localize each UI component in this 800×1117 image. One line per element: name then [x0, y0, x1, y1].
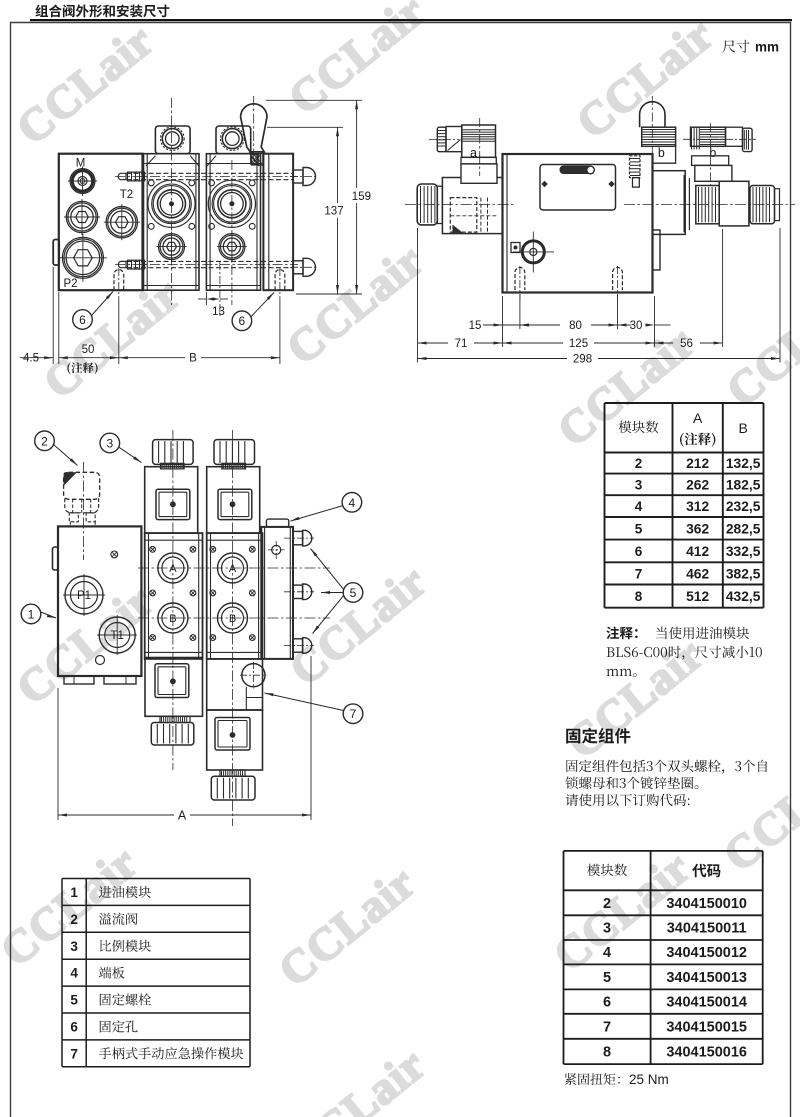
svg-text:4: 4 — [603, 945, 611, 961]
svg-text:7: 7 — [603, 1019, 611, 1035]
svg-text:362: 362 — [686, 521, 709, 536]
svg-text:71: 71 — [455, 338, 468, 350]
svg-text:2: 2 — [635, 456, 643, 471]
svg-text:B: B — [229, 613, 236, 625]
svg-text:b: b — [658, 146, 665, 160]
svg-text:5: 5 — [635, 521, 643, 536]
svg-text:4: 4 — [70, 966, 78, 981]
svg-text:159: 159 — [352, 191, 371, 203]
svg-text:B: B — [169, 613, 176, 625]
svg-text:7: 7 — [350, 707, 357, 721]
svg-text:CCLair: CCLair — [279, 1038, 435, 1117]
svg-text:125: 125 — [569, 338, 588, 350]
svg-text:T1: T1 — [110, 630, 123, 642]
svg-text:B: B — [189, 353, 197, 365]
svg-text:M: M — [76, 158, 86, 170]
svg-text:462: 462 — [686, 566, 709, 581]
svg-text:8: 8 — [603, 1044, 611, 1060]
svg-text:3404150015: 3404150015 — [666, 1019, 747, 1035]
svg-text:CCLair: CCLair — [277, 234, 433, 374]
svg-text:1: 1 — [70, 885, 78, 900]
svg-text:6: 6 — [635, 544, 643, 559]
svg-text:30: 30 — [630, 320, 643, 332]
svg-text:137: 137 — [324, 206, 343, 218]
svg-text:6: 6 — [79, 313, 86, 327]
svg-text:25 Nm: 25 Nm — [629, 1072, 669, 1087]
svg-text:4: 4 — [635, 499, 643, 514]
svg-text:6: 6 — [70, 1019, 78, 1034]
svg-text:382,5: 382,5 — [726, 566, 761, 581]
svg-text:8: 8 — [635, 589, 643, 604]
svg-text:2: 2 — [70, 912, 78, 927]
svg-text:7: 7 — [635, 566, 643, 581]
svg-text:3: 3 — [70, 939, 78, 954]
svg-text:80: 80 — [569, 320, 582, 332]
svg-text:182,5: 182,5 — [726, 477, 761, 492]
svg-text:1: 1 — [28, 608, 35, 622]
svg-text:15: 15 — [469, 320, 482, 332]
svg-text:2: 2 — [603, 896, 611, 912]
svg-text:212: 212 — [686, 456, 709, 471]
svg-text:A: A — [693, 410, 703, 426]
svg-text:56: 56 — [680, 338, 693, 350]
svg-text:332,5: 332,5 — [726, 544, 761, 559]
svg-text:298: 298 — [573, 354, 592, 366]
svg-text:282,5: 282,5 — [726, 521, 761, 536]
svg-text:CCLair: CCLair — [280, 555, 436, 695]
svg-text:2: 2 — [41, 434, 48, 448]
svg-text:7: 7 — [70, 1046, 78, 1061]
svg-text:6: 6 — [239, 314, 246, 328]
svg-text:4: 4 — [349, 496, 356, 510]
svg-text:13: 13 — [212, 306, 225, 318]
svg-text:A: A — [169, 563, 177, 575]
svg-text:3404150016: 3404150016 — [666, 1044, 747, 1060]
svg-text:P2: P2 — [63, 278, 77, 290]
svg-text:5: 5 — [350, 586, 357, 600]
svg-text:512: 512 — [686, 589, 709, 604]
svg-text:262: 262 — [686, 477, 709, 492]
svg-text:50: 50 — [82, 344, 95, 356]
svg-text:A: A — [178, 809, 187, 823]
svg-text:T2: T2 — [120, 189, 133, 201]
svg-text:CCLair: CCLair — [0, 836, 147, 976]
svg-text:B: B — [738, 420, 747, 436]
svg-text:3404150012: 3404150012 — [666, 945, 747, 961]
svg-text:CCLair: CCLair — [557, 628, 713, 768]
svg-text:3: 3 — [603, 921, 611, 937]
svg-text:412: 412 — [686, 544, 709, 559]
svg-text:A: A — [229, 563, 237, 575]
svg-text:132,5: 132,5 — [726, 456, 761, 471]
svg-text:5: 5 — [70, 993, 78, 1008]
svg-text:3404150011: 3404150011 — [667, 921, 747, 937]
svg-text:CCLair: CCLair — [717, 276, 800, 416]
svg-text:3404150010: 3404150010 — [666, 896, 747, 912]
svg-text:P1: P1 — [77, 590, 91, 602]
svg-text:232,5: 232,5 — [726, 499, 761, 514]
svg-text:5: 5 — [603, 970, 611, 986]
svg-text:3404150014: 3404150014 — [666, 995, 747, 1011]
svg-text:CCLair: CCLair — [7, 14, 163, 154]
svg-text:mm: mm — [755, 40, 779, 55]
svg-text:4.5: 4.5 — [23, 353, 39, 365]
svg-text:3: 3 — [635, 477, 643, 492]
svg-text:3404150013: 3404150013 — [666, 970, 747, 986]
svg-text:3: 3 — [106, 437, 113, 451]
svg-text:6: 6 — [603, 995, 611, 1011]
svg-text:432,5: 432,5 — [726, 589, 761, 604]
svg-text:CCLair: CCLair — [269, 856, 425, 996]
svg-text:CCLair: CCLair — [714, 741, 800, 881]
svg-text:312: 312 — [686, 499, 709, 514]
